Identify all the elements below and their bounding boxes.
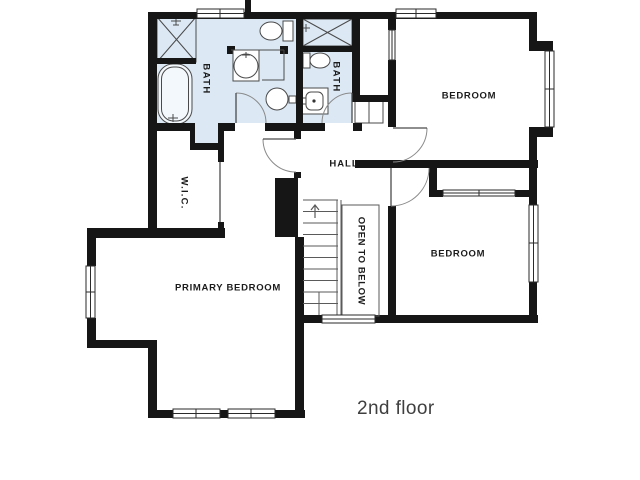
wall [352, 19, 360, 101]
room-label-bath-2: BATH [331, 61, 342, 92]
room-label-hall: HALL [329, 159, 358, 170]
wall [275, 178, 298, 237]
wall [87, 228, 96, 266]
wall [515, 190, 529, 197]
bath-1-alcove [195, 123, 218, 145]
wall [352, 95, 390, 102]
wall [301, 123, 325, 131]
floor-plan-page: BATHBATHW.I.C.HALLOPEN TO BELOWBEDROOMBE… [0, 0, 640, 480]
sink-2-faucet [289, 96, 296, 103]
wall [529, 168, 537, 205]
door-hall-swing [263, 139, 296, 172]
wall [529, 282, 537, 323]
wall [218, 123, 224, 162]
shower-2-sill [300, 46, 352, 52]
wall [190, 143, 222, 150]
wall [295, 237, 304, 418]
wall [529, 41, 553, 51]
toilet-1-tank [283, 21, 293, 41]
wall [245, 0, 251, 13]
wall [148, 123, 195, 131]
room-label-wic: W.I.C. [179, 176, 190, 209]
wall [353, 123, 362, 131]
wall [388, 60, 396, 127]
wall [429, 190, 443, 197]
wall [148, 410, 305, 418]
wall [265, 123, 301, 131]
wall [529, 127, 553, 137]
room-label-bedroom-1: BEDROOM [442, 91, 497, 102]
door-bedroom-2-swing [391, 168, 429, 206]
wall [296, 19, 303, 131]
room-label-primary-bedroom: PRIMARY BEDROOM [175, 283, 281, 294]
wall [294, 131, 301, 139]
wall [148, 131, 157, 238]
wall [224, 123, 235, 131]
room-label-bedroom-2: BEDROOM [431, 249, 486, 260]
wall [148, 340, 157, 418]
toilet-2-bowl [310, 53, 330, 68]
wall [388, 19, 396, 30]
wall [87, 228, 225, 238]
vanity-2-drain [312, 99, 315, 102]
room-label-open-to-below: OPEN TO BELOW [356, 217, 367, 305]
wall [148, 12, 157, 131]
wall [355, 160, 538, 168]
room-label-bath-1: BATH [201, 63, 212, 94]
toilet-1-bowl [260, 22, 282, 40]
sink-2 [266, 88, 288, 110]
wall [150, 58, 196, 64]
floor-caption: 2nd floor [357, 398, 435, 420]
wall [295, 315, 322, 323]
toilet-2-tank [303, 53, 310, 68]
floor-plan-drawing: BATHBATHW.I.C.HALLOPEN TO BELOWBEDROOMBE… [0, 0, 640, 480]
wall [388, 206, 396, 317]
wall [294, 172, 301, 178]
wall [375, 315, 538, 323]
wall [87, 340, 157, 348]
wall [529, 12, 537, 43]
door-bedroom-1-swing [393, 128, 427, 162]
